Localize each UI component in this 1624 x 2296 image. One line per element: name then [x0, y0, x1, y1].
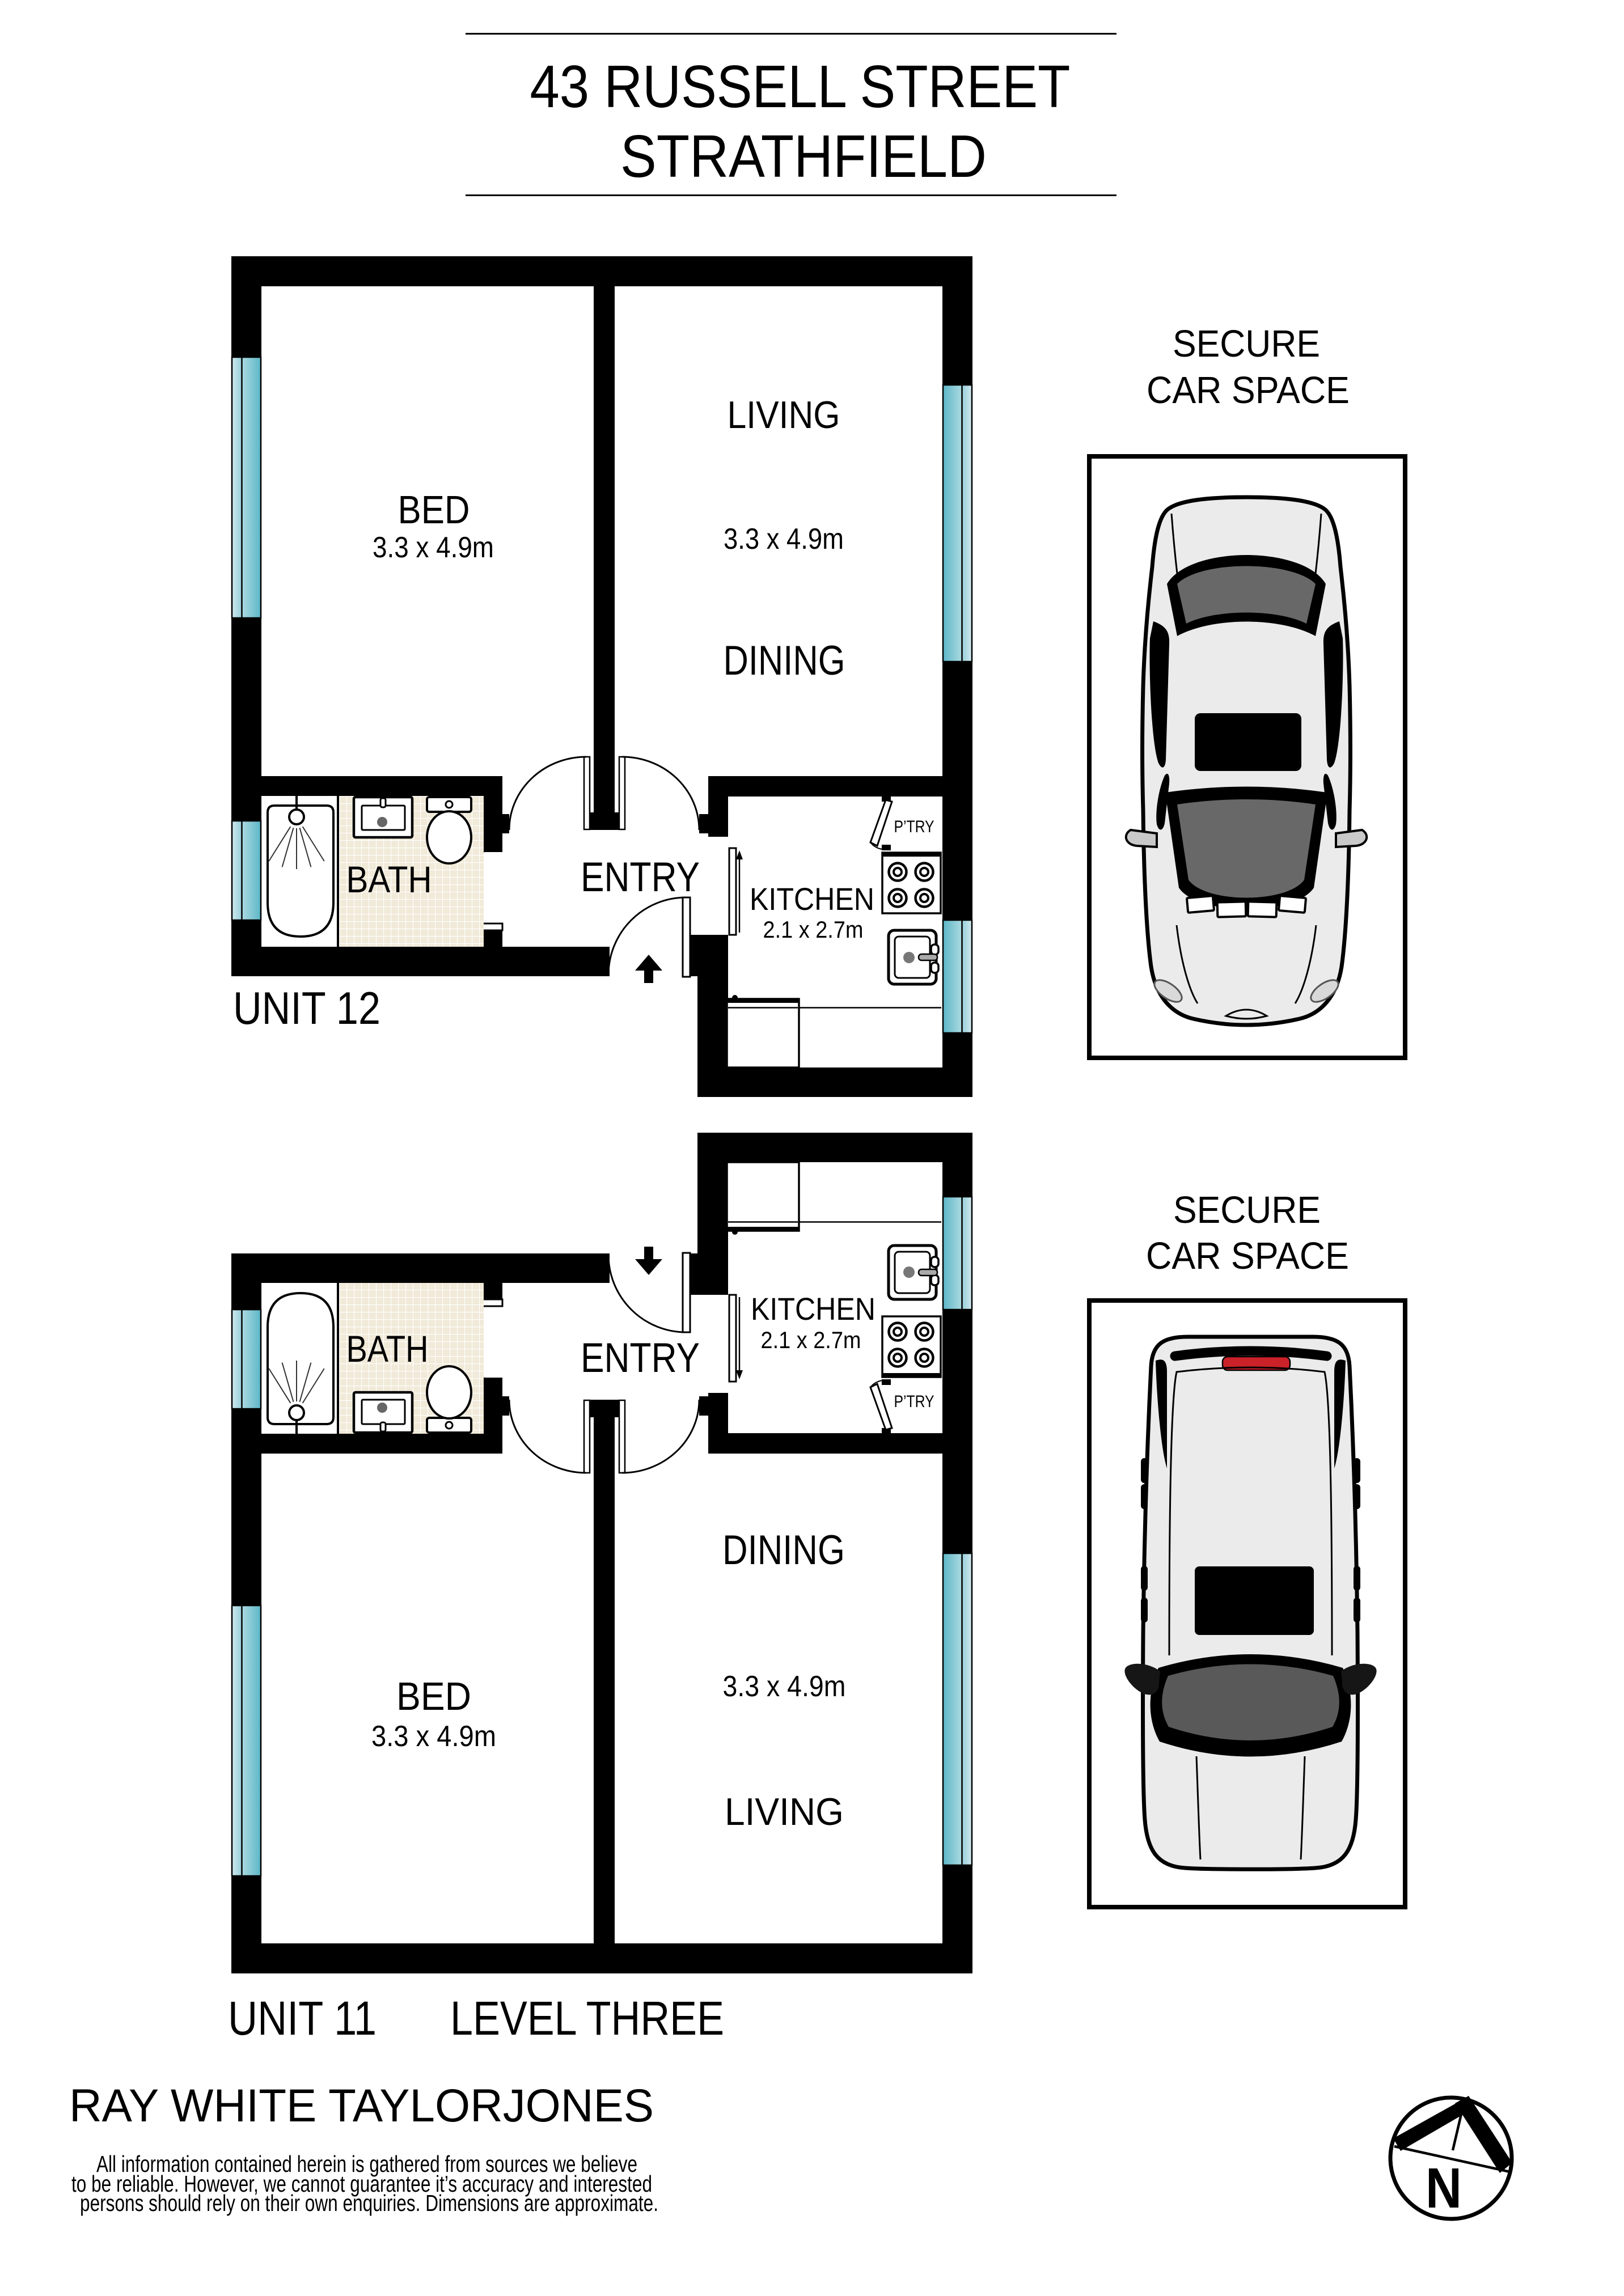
- svg-text:UNIT 11: UNIT 11: [228, 1992, 377, 2045]
- svg-text:3.3 x 4.9m: 3.3 x 4.9m: [723, 1670, 846, 1703]
- svg-text:UNIT 12: UNIT 12: [233, 983, 380, 1034]
- svg-text:P’TRY: P’TRY: [894, 817, 934, 836]
- svg-text:43 RUSSELL STREET: 43 RUSSELL STREET: [530, 53, 1071, 120]
- svg-text:3.3 x 4.9m: 3.3 x 4.9m: [373, 531, 494, 564]
- svg-text:3.3 x 4.9m: 3.3 x 4.9m: [724, 523, 844, 556]
- svg-text:3.3 x 4.9m: 3.3 x 4.9m: [371, 1720, 496, 1753]
- svg-text:LEVEL THREE: LEVEL THREE: [450, 1992, 724, 2045]
- svg-text:P’TRY: P’TRY: [894, 1392, 934, 1411]
- svg-text:DINING: DINING: [722, 1527, 845, 1573]
- svg-text:LIVING: LIVING: [725, 1790, 844, 1833]
- svg-text:DINING: DINING: [724, 638, 845, 684]
- svg-text:persons should rely on their o: persons should rely on their own enquiri…: [80, 2190, 658, 2216]
- svg-text:CAR SPACE: CAR SPACE: [1146, 1235, 1349, 1277]
- svg-text:STRATHFIELD: STRATHFIELD: [620, 123, 987, 190]
- svg-text:2.1 x 2.7m: 2.1 x 2.7m: [763, 916, 864, 943]
- svg-text:2.1 x 2.7m: 2.1 x 2.7m: [761, 1327, 861, 1353]
- svg-text:ENTRY: ENTRY: [581, 854, 700, 900]
- svg-text:BATH: BATH: [346, 858, 432, 900]
- svg-text:BED: BED: [398, 488, 470, 532]
- svg-text:ENTRY: ENTRY: [581, 1335, 700, 1381]
- svg-text:N: N: [1426, 2157, 1462, 2220]
- svg-text:RAY WHITE TAYLORJONES: RAY WHITE TAYLORJONES: [69, 2080, 654, 2132]
- svg-text:KITCHEN: KITCHEN: [751, 1291, 876, 1327]
- svg-text:SECURE: SECURE: [1173, 1189, 1321, 1231]
- svg-text:KITCHEN: KITCHEN: [750, 881, 874, 917]
- svg-text:CAR SPACE: CAR SPACE: [1147, 369, 1350, 412]
- svg-text:BATH: BATH: [346, 1328, 429, 1370]
- svg-text:BED: BED: [396, 1674, 471, 1718]
- svg-text:LIVING: LIVING: [728, 393, 840, 437]
- svg-text:SECURE: SECURE: [1173, 323, 1320, 365]
